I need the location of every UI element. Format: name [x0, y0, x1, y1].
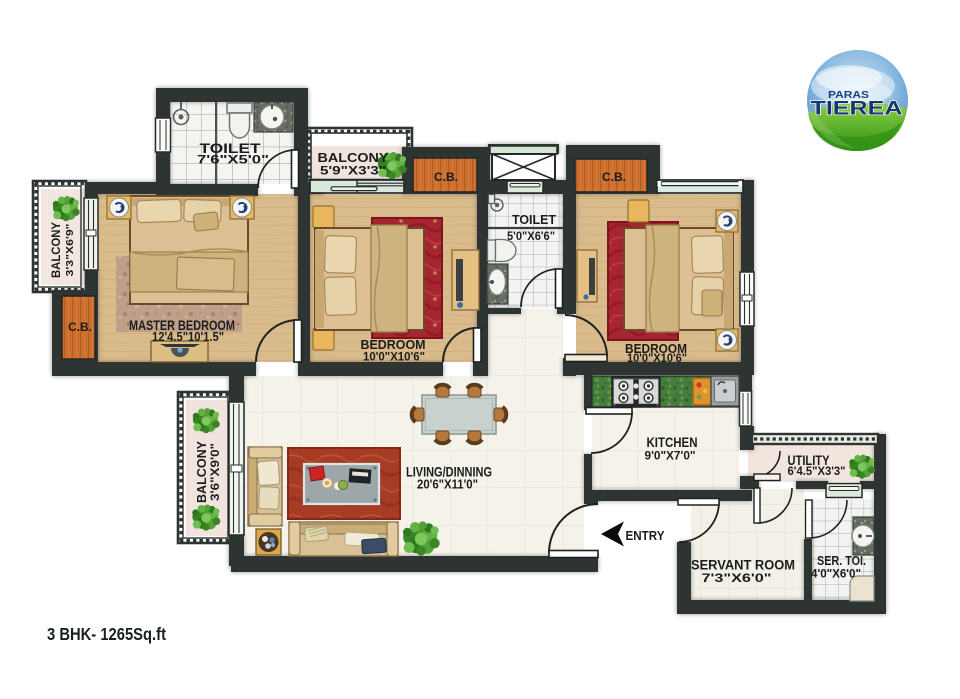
- svg-text:TIEREA: TIEREA: [811, 99, 903, 120]
- svg-text:3 BHK- 1265Sq.ft: 3 BHK- 1265Sq.ft: [47, 624, 166, 644]
- svg-text:BEDROOM: BEDROOM: [361, 337, 426, 352]
- svg-text:5'9"X3'3": 5'9"X3'3": [320, 166, 386, 178]
- svg-text:10'0"X10'6": 10'0"X10'6": [627, 353, 687, 365]
- svg-text:20'6"X11'0": 20'6"X11'0": [417, 478, 478, 492]
- svg-text:3'3"X6'9": 3'3"X6'9": [64, 223, 76, 276]
- svg-text:7'6"X5'0": 7'6"X5'0": [197, 153, 269, 167]
- svg-text:5'0"X6'6": 5'0"X6'6": [507, 231, 555, 243]
- svg-text:6'4.5"X3'3": 6'4.5"X3'3": [788, 466, 846, 478]
- svg-text:SERVANT ROOM: SERVANT ROOM: [691, 558, 795, 573]
- svg-text:TOILET: TOILET: [512, 213, 556, 227]
- svg-text:9'0"X7'0": 9'0"X7'0": [645, 449, 696, 463]
- svg-text:BALCONY: BALCONY: [51, 222, 63, 278]
- svg-text:C.B.: C.B.: [602, 172, 626, 184]
- svg-text:C.B.: C.B.: [434, 172, 458, 184]
- svg-text:10'0"X10'6": 10'0"X10'6": [363, 352, 425, 364]
- svg-text:C.B.: C.B.: [68, 322, 92, 334]
- svg-text:12'4.5"10'1.5": 12'4.5"10'1.5": [152, 330, 224, 344]
- svg-text:BALCONY: BALCONY: [318, 151, 390, 165]
- svg-text:7'3"X6'0": 7'3"X6'0": [702, 573, 772, 585]
- svg-text:3'6"X9'0": 3'6"X9'0": [210, 443, 222, 501]
- svg-text:SER. TOI.: SER. TOI.: [817, 554, 866, 568]
- svg-text:4'0"X6'0": 4'0"X6'0": [811, 569, 861, 581]
- svg-text:ENTRY: ENTRY: [626, 529, 666, 543]
- svg-text:BALCONY: BALCONY: [195, 440, 209, 503]
